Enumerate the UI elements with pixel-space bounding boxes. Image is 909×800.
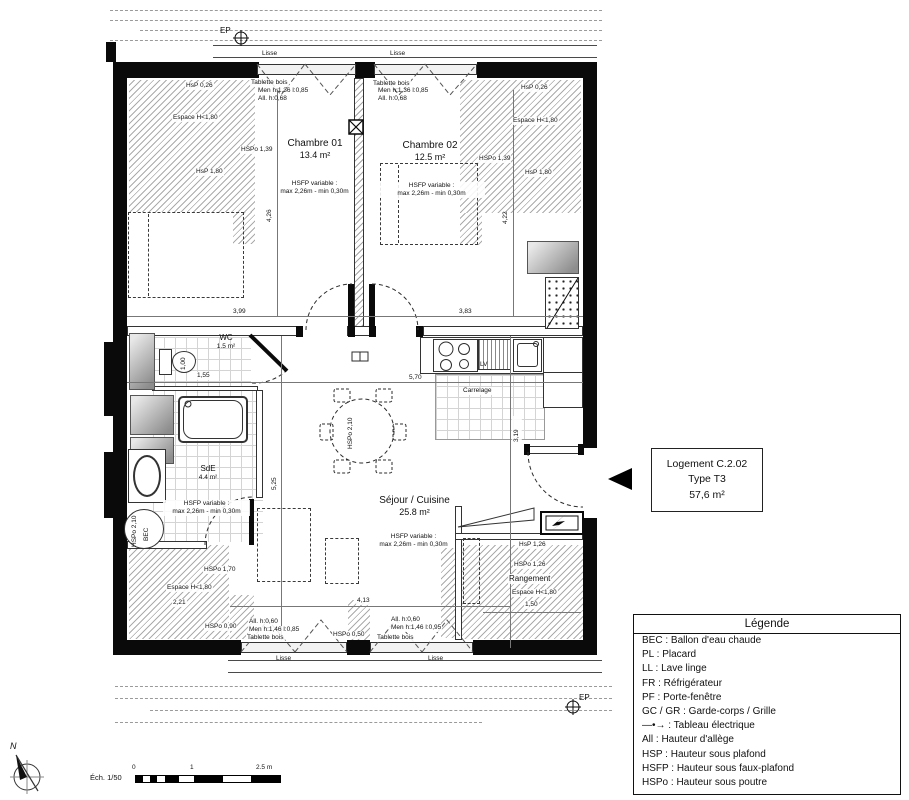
hsfp-note: HSFP variable :	[163, 500, 250, 508]
bec-label: BEC	[143, 517, 151, 541]
unit-name: Logement C.2.02	[652, 457, 762, 472]
chair	[376, 389, 392, 402]
scale-seg	[165, 776, 179, 782]
bathtub-inner	[183, 400, 243, 439]
window-bottom-2	[370, 642, 473, 653]
window-niche	[527, 241, 579, 274]
chair	[320, 424, 333, 440]
counter-divider	[543, 372, 583, 373]
dim-label: 5,25	[270, 464, 280, 490]
wall-left	[113, 62, 127, 655]
tablette-label: Tablette bois	[376, 634, 415, 642]
scale-tick-1: 1	[190, 764, 194, 772]
dim-label: 4,22	[502, 198, 510, 224]
door-arc-chambre1	[306, 284, 352, 330]
wall-bottom	[113, 640, 241, 655]
bed-pillow-line	[398, 165, 399, 243]
floor-plan-sheet: HsP 0,26 Espace H<1,80 HSPo 1,39 HsP 1,8…	[0, 0, 909, 800]
room-label-chambre1: Chambre 01	[270, 138, 360, 150]
door-jamb	[524, 444, 530, 455]
sofa-outline	[257, 508, 311, 582]
stove-icon	[433, 339, 478, 372]
dining-table	[330, 399, 394, 463]
scale-seg	[143, 776, 150, 782]
vent-icon	[360, 352, 368, 361]
allege-label: All. h:0,68	[378, 95, 407, 103]
hspo-label: HSPo 1,39	[240, 146, 273, 154]
dim-label: 3,99	[232, 308, 247, 316]
dim-label: 2,21	[172, 599, 187, 607]
unit-area: 57,6 m²	[652, 488, 762, 503]
storage-outline	[463, 538, 480, 604]
wall-left-pier	[104, 452, 113, 518]
balcony-rail-top	[213, 45, 597, 46]
hsfp-note: HSFP variable :	[262, 180, 367, 188]
lisse-label: Lisse	[390, 50, 405, 58]
entrance-arrow-icon	[608, 468, 632, 490]
legend-item: LL : Lave linge	[634, 662, 900, 676]
door-leaf-chambre1	[348, 284, 354, 330]
espace-label: Espace H<1,80	[172, 114, 219, 122]
wall-top	[477, 62, 597, 78]
door-jamb	[578, 444, 584, 455]
room-area-chambre2: 12.5 m²	[385, 152, 475, 163]
legend-item: —•→ : Tableau électrique	[634, 719, 900, 733]
compass-cross	[10, 760, 44, 794]
legend-item: PL : Placard	[634, 648, 900, 662]
room-label-sde: SdE	[188, 464, 228, 474]
dim-label: 1,55	[196, 372, 211, 380]
wall-top	[113, 62, 259, 78]
room-area-sejour: 25.8 m²	[352, 507, 477, 518]
scale-seg	[251, 776, 280, 782]
hsfp-note: HSFP variable :	[366, 533, 461, 541]
wall-top-pier	[355, 62, 375, 78]
wall-stub	[106, 42, 116, 62]
room-label-sejour: Séjour / Cuisine	[352, 495, 477, 507]
window-bottom-1	[241, 642, 347, 653]
ep-marker-bottom	[567, 701, 579, 713]
tablette-label: Tablette bois	[250, 79, 289, 87]
chair	[393, 424, 406, 440]
hspo-label: HSPo 2,10	[346, 409, 356, 449]
scale-tick-0: 0	[132, 764, 136, 772]
ep-marker-top	[235, 32, 247, 44]
hspo-label: HSPo 2,10	[131, 511, 139, 547]
hsp-label: HsP 0,26	[185, 82, 214, 90]
door-leaf-chambre2	[369, 284, 375, 330]
door-arc-entrance	[528, 452, 583, 507]
unit-info-box: Logement C.2.02 Type T3 57,6 m²	[651, 448, 763, 512]
balcony-rail-bottom	[228, 672, 602, 673]
legend-item: FR : Réfrigérateur	[634, 677, 900, 691]
roof-line	[110, 40, 602, 41]
electrical-panel-inner	[546, 516, 578, 530]
wall-rangement-left	[455, 506, 462, 640]
hspo-label: HSPo 1,39	[478, 155, 511, 163]
scale-seg	[157, 776, 165, 782]
window-top-2	[374, 64, 477, 75]
legend-item: BEC : Ballon d'eau chaude	[634, 634, 900, 648]
legend-box: Légende BEC : Ballon d'eau chaude PL : P…	[633, 614, 901, 795]
washbasin-icon	[133, 455, 161, 497]
lisse-label: Lisse	[428, 655, 443, 663]
espace-label: Espace H<1,80	[511, 589, 558, 597]
toilet-tank	[159, 349, 172, 375]
wall-right	[583, 62, 597, 332]
hsfp-note: max 2,26m - min 0,30m	[366, 541, 461, 549]
lv-label: LV	[480, 361, 487, 369]
dim-label: 4,26	[266, 196, 274, 222]
room-area-sde: 4.4 m²	[188, 474, 228, 482]
roof-line	[115, 722, 482, 723]
scale-seg	[194, 776, 223, 782]
storage-unit-icon	[130, 395, 174, 435]
kitchen-sink-bowl	[517, 343, 538, 367]
chair	[334, 460, 350, 473]
bed-outline-chambre2	[380, 163, 478, 245]
chair	[376, 460, 392, 473]
dim-line	[281, 336, 282, 640]
door-arc-wc	[252, 369, 288, 383]
hatch-rangement-column	[441, 548, 455, 638]
wall-sde-living	[256, 390, 263, 498]
dim-label: 3,83	[458, 308, 473, 316]
dim-label: 1,00	[180, 348, 188, 370]
duct-shaft	[545, 277, 579, 329]
hspo-label: HSPo 1,26	[513, 561, 546, 569]
allege-label: All. h:0,60	[248, 618, 279, 626]
hsp-label: HsP 1,80	[524, 169, 553, 177]
legend-item: HSFP : Hauteur sous faux-plafond	[634, 762, 900, 776]
electrical-panel-icon	[541, 512, 583, 534]
scale-seg	[150, 776, 157, 782]
hsfp-note: max 2,26m - min 0,30m	[262, 188, 367, 196]
roof-line	[115, 698, 612, 699]
ep-label: EP	[579, 693, 590, 703]
espace-label: Espace H<1,80	[512, 117, 559, 125]
hsfp-note: max 2,26m - min 0,30m	[378, 190, 485, 198]
low-table-outline	[325, 538, 359, 584]
compass-needle-head	[16, 755, 27, 780]
scale-seg	[136, 776, 143, 782]
compass-circle	[14, 764, 40, 790]
hsp-label: HsP 0,26	[520, 84, 549, 92]
wall-wc-sde	[152, 386, 258, 391]
hspo-label: HSPo 0,50	[332, 631, 365, 639]
lightning-bolt-icon	[549, 514, 566, 532]
legend-item: GC / GR : Garde-corps / Grille	[634, 705, 900, 719]
hsfp-note: HSFP variable :	[378, 182, 485, 190]
wall-bottom	[473, 640, 597, 655]
roof-line	[140, 30, 602, 31]
kitchen-tiled-floor	[435, 374, 545, 440]
carrelage-label: Carrelage	[462, 387, 493, 395]
lisse-label: Lisse	[276, 655, 291, 663]
menuiserie-label: Men h:1,46 l:0,95	[390, 624, 442, 632]
scale-bar	[135, 775, 281, 783]
hspo-label: HSPo 0,90	[204, 623, 237, 631]
roof-line	[150, 710, 612, 711]
room-area-chambre1: 13.4 m²	[270, 150, 360, 161]
hspo-label: HSPo 1,70	[203, 566, 236, 574]
door-jamb	[416, 326, 423, 337]
scale-tick-25: 2.5 m	[256, 764, 272, 772]
door-jamb	[296, 326, 303, 337]
hatch-low-ceiling-top-left	[129, 80, 255, 212]
espace-label: Espace H<1,80	[166, 584, 213, 592]
dim-line	[277, 90, 278, 316]
menuiserie-label: Men h:1,46 l:0,85	[248, 626, 300, 634]
unit-type: Type T3	[652, 472, 762, 487]
dim-line	[483, 612, 581, 613]
ep-marker-top-cross	[233, 30, 249, 46]
wall-bottom-pier	[347, 640, 370, 655]
hsfp-note: max 2,26m - min 0,30m	[163, 508, 250, 516]
bed-pillow-line	[148, 214, 149, 296]
legend-title: Légende	[634, 615, 900, 634]
entrance-door-leaf	[528, 446, 583, 454]
dim-label: 1,50	[524, 601, 539, 609]
legend-item: All : Hauteur d'allège	[634, 733, 900, 747]
legend-item: HSP : Hauteur sous plafond	[634, 748, 900, 762]
legend-item: PF : Porte-fenêtre	[634, 691, 900, 705]
ep-label: EP	[220, 26, 231, 36]
chair	[334, 389, 350, 402]
compass-needle	[16, 755, 38, 791]
door-arc-chambre2	[372, 284, 418, 330]
dim-line	[230, 606, 510, 607]
hsp-label: HsP 1,80	[195, 168, 224, 176]
allege-label: All. h:0,60	[390, 616, 421, 624]
wall-right	[583, 332, 597, 448]
allege-label: All. h:0,68	[258, 95, 287, 103]
scale-seg	[223, 776, 251, 782]
roof-line	[110, 20, 602, 21]
lisse-label: Lisse	[262, 50, 277, 58]
dim-label: 4,13	[356, 597, 371, 605]
window-top-1	[257, 64, 356, 75]
roof-line	[110, 10, 602, 11]
dim-line	[127, 316, 583, 317]
dim-label: 5,70	[408, 374, 423, 382]
wall-between-bedrooms	[354, 78, 364, 328]
bed-outline-chambre1	[128, 212, 244, 298]
room-area-wc: 1.5 m²	[206, 343, 246, 351]
menuiserie-label: Men h:1,36 l:0,85	[378, 87, 428, 95]
dim-line	[127, 382, 583, 383]
wall-left-pier	[104, 342, 113, 416]
room-label-wc: WC	[206, 333, 246, 343]
roof-line	[115, 686, 612, 687]
tablette-label: Tablette bois	[246, 634, 285, 642]
legend-item: HSPo : Hauteur sous poutre	[634, 776, 900, 790]
wall-right	[583, 518, 597, 655]
scale-seg	[179, 776, 194, 782]
scale-label: Éch. 1/50	[90, 773, 122, 782]
hsp-label: HsP 1,26	[518, 541, 547, 549]
menuiserie-label: Men h:1,36 l:0,85	[258, 87, 308, 95]
dim-label: 3,19	[512, 416, 522, 442]
dim-line	[510, 336, 511, 648]
room-label-chambre2: Chambre 02	[385, 140, 475, 152]
north-label: N	[10, 741, 17, 752]
room-label-rangement: Rangement	[508, 574, 551, 584]
vent-icon	[352, 352, 360, 361]
